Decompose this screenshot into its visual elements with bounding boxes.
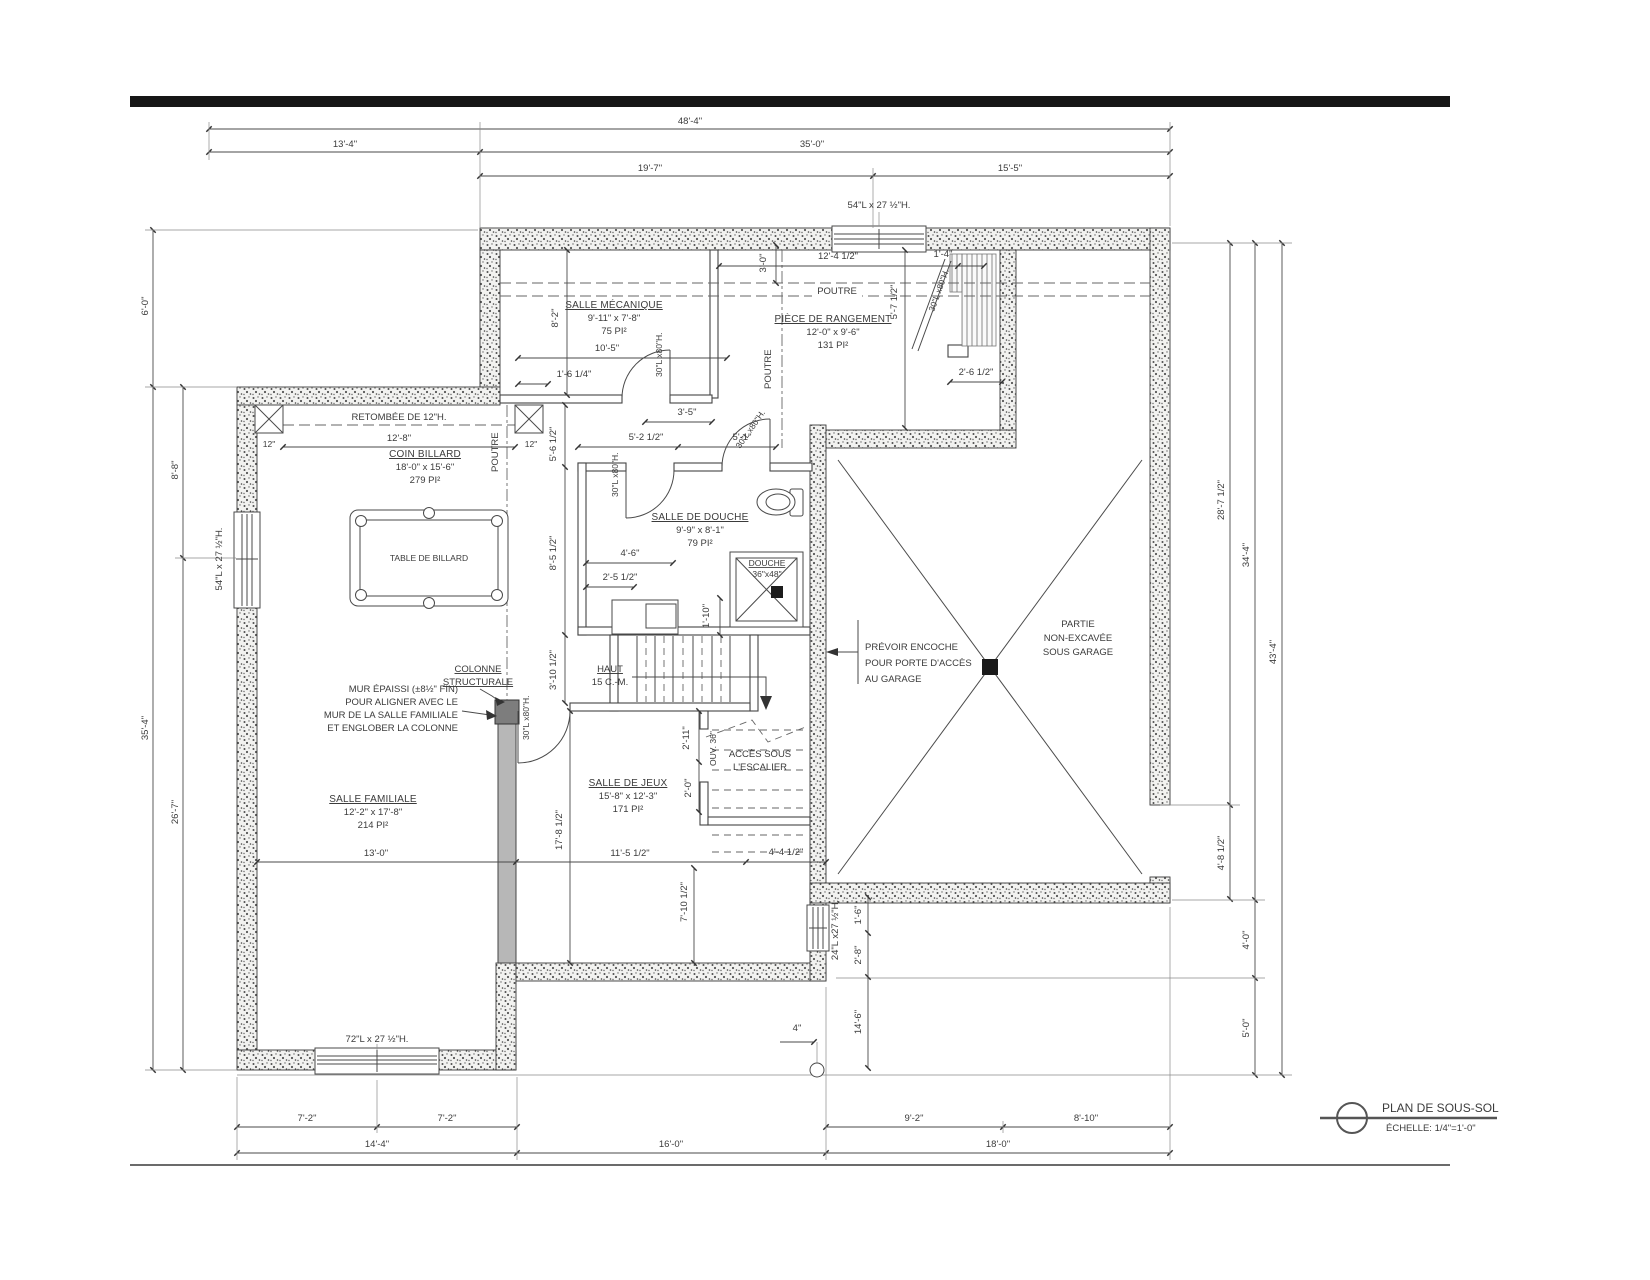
dim-4-8: 4'-8 1/2" xyxy=(1216,836,1227,871)
dim-4in: 4" xyxy=(793,1023,802,1034)
dim-15-5: 15'-5" xyxy=(998,163,1022,174)
dim-17-8-5: 17'-8 1/2" xyxy=(554,810,565,850)
door-label-jeux: 30"L x80"H. xyxy=(521,696,531,740)
room-name-familiale: SALLE FAMILIALE xyxy=(329,794,417,805)
stairs-up-label: HAUT xyxy=(597,664,623,675)
dim-8-5-5: 8'-5 1/2" xyxy=(548,536,559,571)
dim-7-2-b: 7'-2" xyxy=(438,1113,457,1124)
beam-label-v1: POUTRE xyxy=(763,349,774,389)
column-note-leader xyxy=(480,689,505,706)
dim-14-6: 14'-6" xyxy=(853,1010,864,1034)
retombee-note: RETOMBÉE DE 12"H. xyxy=(351,412,446,423)
dim-2-0: 2'-0" xyxy=(683,779,694,798)
toilet xyxy=(757,489,803,516)
column-note-2: STRUCTURALE xyxy=(443,677,513,688)
dim-35-4-left: 35'-4" xyxy=(140,716,151,740)
dim-5-7-5: 5'-7 1/2" xyxy=(889,285,900,320)
beam-label-h: POUTRE xyxy=(817,286,857,297)
window-label-left: 54"L x 27 ½"H. xyxy=(214,528,225,591)
dim-12-4-5: 12'-4 1/2" xyxy=(818,251,858,262)
dim-18-0: 18'-0" xyxy=(986,1139,1010,1150)
dim-5-6-5: 5'-6 1/2" xyxy=(548,427,559,462)
room-dims-billard: 18'-0" x 15'-6" xyxy=(396,462,454,473)
dim-14-4: 14'-4" xyxy=(365,1139,389,1150)
access-door-note-2: POUR PORTE D'ACCÈS xyxy=(865,658,972,669)
cold-room xyxy=(912,254,996,351)
garage-note-1: PARTIE xyxy=(1061,619,1094,630)
dim-4-0: 4'-0" xyxy=(1241,931,1252,950)
column-note-1: COLONNE xyxy=(455,664,502,675)
drawing-sheet: POUTRE POUTRE POUTRE 12" 12" RETOMBÉE DE… xyxy=(0,0,1650,1275)
opening-36-label: OUV. 36" xyxy=(708,731,718,766)
dim-lines-top xyxy=(209,122,1170,228)
window-top xyxy=(832,226,926,252)
dim-2-6-5: 2'-6 1/2" xyxy=(959,367,994,378)
dim-26-7-left: 26'-7" xyxy=(170,800,181,824)
dim-3-0: 3'-0" xyxy=(758,254,769,273)
dim-8-10: 8'-10" xyxy=(1074,1113,1098,1124)
stairs-risers-label: 15 C.-M. xyxy=(592,677,628,688)
under-stair-storage xyxy=(706,720,808,852)
shower-size: 36"x48" xyxy=(752,569,781,579)
shower-label: DOUCHE xyxy=(749,558,786,568)
room-area-jeux: 171 PI² xyxy=(613,804,644,815)
window-label-right: 24"L x27 ½"H. xyxy=(830,900,841,960)
room-name-douche: SALLE DE DOUCHE xyxy=(652,512,749,523)
dim-43-4: 43'-4" xyxy=(1268,640,1279,664)
dim-3-5: 3'-5" xyxy=(678,407,697,418)
door-label-hall: 30"L x80"H. xyxy=(733,408,767,450)
thickened-wall xyxy=(498,703,516,963)
window-right xyxy=(807,905,829,951)
dim-12-8: 12'-8" xyxy=(387,433,411,444)
room-dims-familiale: 12'-2" x 17'-8" xyxy=(344,807,402,818)
dim-1-6: 1'-6" xyxy=(853,906,864,925)
dim-5-1: 5'-1" xyxy=(733,432,752,443)
drawing-scale: ÉCHELLE: 1/4"=1'-0" xyxy=(1386,1123,1476,1134)
exterior-walls xyxy=(237,228,1170,1070)
thick-wall-note-2: POUR ALIGNER AVEC LE xyxy=(345,697,458,708)
garage-note-2: NON-EXCAVÉE xyxy=(1044,633,1112,644)
room-dims-jeux: 15'-8" x 12'-3" xyxy=(599,791,657,802)
dim-7-2-a: 7'-2" xyxy=(298,1113,317,1124)
dim-13-4: 13'-4" xyxy=(333,139,357,150)
window-label-top: 54"L x 27 ½"H. xyxy=(848,200,911,211)
door-label-mecanique: 30"L x80"H. xyxy=(654,333,664,377)
room-area-familiale: 214 PI² xyxy=(358,820,389,831)
room-name-rangement: PIÈCE DE RANGEMENT xyxy=(775,312,892,325)
thick-wall-note-1: MUR ÉPAISSI (±8½" FIN) xyxy=(349,684,458,695)
under-stair-label-2: L'ESCALIER xyxy=(733,762,787,773)
dim-34-4: 34'-4" xyxy=(1241,543,1252,567)
dim-4-6: 4'-6" xyxy=(621,548,640,559)
window-label-bottom: 72"L x 27 ½"H. xyxy=(346,1034,409,1045)
dim-3-10-5: 3'-10 1/2" xyxy=(548,650,559,690)
room-dims-mecanique: 9'-11" x 7'-8" xyxy=(588,313,640,324)
room-name-jeux: SALLE DE JEUX xyxy=(589,778,668,789)
dim-2-8: 2'-8" xyxy=(853,946,864,965)
vanity-sink xyxy=(612,600,678,634)
dim-1-10: 1'-10" xyxy=(701,604,712,628)
dim-8-2: 8'-2" xyxy=(550,309,561,328)
dim-5-2-5: 5'-2 1/2" xyxy=(629,432,664,443)
dim-2-5-5: 2'-5 1/2" xyxy=(603,572,638,583)
dim-28-7: 28'-7 1/2" xyxy=(1216,480,1227,520)
dim-1-4: 1'-4" xyxy=(934,249,953,260)
dim-11-5-5: 11'-5 1/2" xyxy=(610,848,649,859)
dim-8-8-left: 8'-8" xyxy=(170,461,181,480)
dim-16-0: 16'-0" xyxy=(659,1139,683,1150)
garage-note-3: SOUS GARAGE xyxy=(1043,647,1113,658)
room-name-billard: COIN BILLARD xyxy=(389,449,461,460)
room-area-mecanique: 75 PI² xyxy=(601,326,626,337)
room-dims-rangement: 12'-0" x 9'-6" xyxy=(806,327,859,338)
thick-wall-note-4: ET ENGLOBER LA COLONNE xyxy=(327,723,458,734)
dim-lines-left xyxy=(145,230,478,1070)
room-name-mecanique: SALLE MÉCANIQUE xyxy=(565,298,663,311)
door-label-cellar: 30"L x80"H. xyxy=(926,267,951,312)
access-door-note-leader xyxy=(826,620,858,684)
dim-48-4: 48'-4" xyxy=(678,116,702,127)
room-area-billard: 279 PI² xyxy=(410,475,441,486)
thick-wall-note-leader xyxy=(462,710,497,720)
dim-6-0-left: 6'-0" xyxy=(140,297,151,316)
access-door-note-1: PRÉVOIR ENCOCHE xyxy=(865,642,958,653)
column-size-left: 12" xyxy=(263,439,275,449)
dim-4-4-5: 4'-4 1/2" xyxy=(769,847,804,858)
dim-1-6-25: 1'-6 1/4" xyxy=(557,369,592,380)
room-dims-douche: 9'-9" x 8'-1" xyxy=(676,525,724,536)
door-label-bathroom: 30"L x80"H. xyxy=(610,453,620,497)
dim-13-0: 13'-0" xyxy=(364,848,388,859)
dim-7-10-5: 7'-10 1/2" xyxy=(679,882,690,922)
pool-table-label: TABLE DE BILLARD xyxy=(390,553,468,563)
room-area-douche: 79 PI² xyxy=(687,538,712,549)
dim-10-5: 10'-5" xyxy=(595,343,619,354)
access-door-note-3: AU GARAGE xyxy=(865,674,922,685)
room-area-rangement: 131 PI² xyxy=(818,340,849,351)
drawing-title: PLAN DE SOUS-SOL xyxy=(1382,1101,1499,1115)
column-size-right: 12" xyxy=(525,439,537,449)
window-left xyxy=(234,512,260,608)
window-bottom xyxy=(315,1048,439,1074)
dim-9-2: 9'-2" xyxy=(905,1113,924,1124)
dim-2-11: 2'-11" xyxy=(681,726,692,750)
thick-wall-note-3: MUR DE LA SALLE FAMILIALE xyxy=(324,710,458,721)
under-stair-label-1: ACCÈS SOUS xyxy=(729,749,791,760)
dim-5-0: 5'-0" xyxy=(1241,1019,1252,1038)
dim-19-7: 19'-7" xyxy=(638,163,662,174)
beam-label-v2: POUTRE xyxy=(490,432,501,472)
floorplan-svg: POUTRE POUTRE POUTRE 12" 12" RETOMBÉE DE… xyxy=(0,0,1650,1275)
dim-35-0: 35'-0" xyxy=(800,139,824,150)
